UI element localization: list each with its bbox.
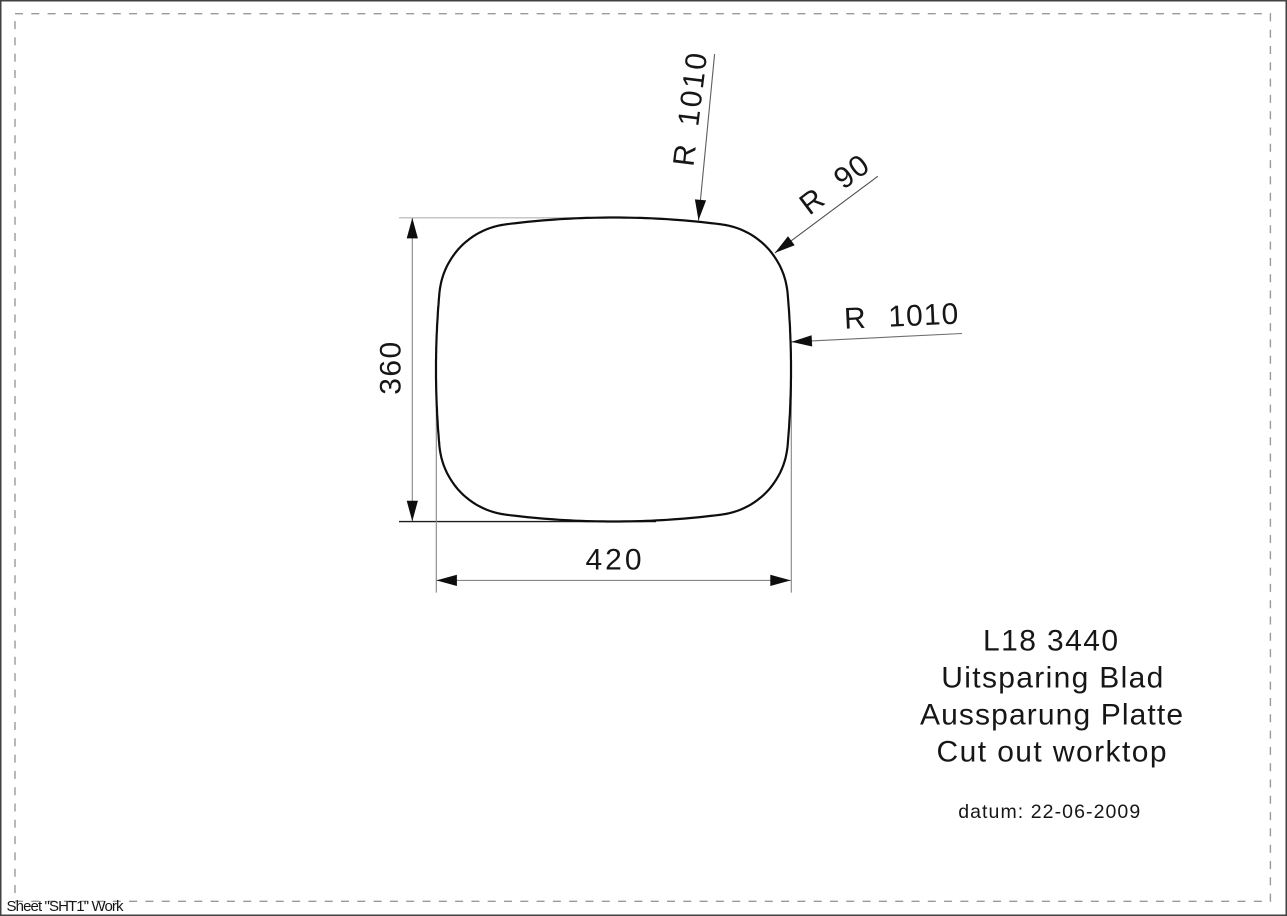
- svg-text:datum: 22-06-2009: datum: 22-06-2009: [958, 801, 1140, 823]
- svg-text:R1010: R1010: [843, 298, 960, 336]
- svg-text:Sheet "SHT1" Work: Sheet "SHT1" Work: [7, 898, 125, 915]
- svg-text:L18 3440: L18 3440: [983, 625, 1118, 658]
- svg-text:Aussparung Platte: Aussparung Platte: [920, 698, 1183, 731]
- svg-text:420: 420: [586, 544, 642, 577]
- svg-text:Cut out worktop: Cut out worktop: [937, 735, 1167, 768]
- svg-text:360: 360: [375, 342, 408, 395]
